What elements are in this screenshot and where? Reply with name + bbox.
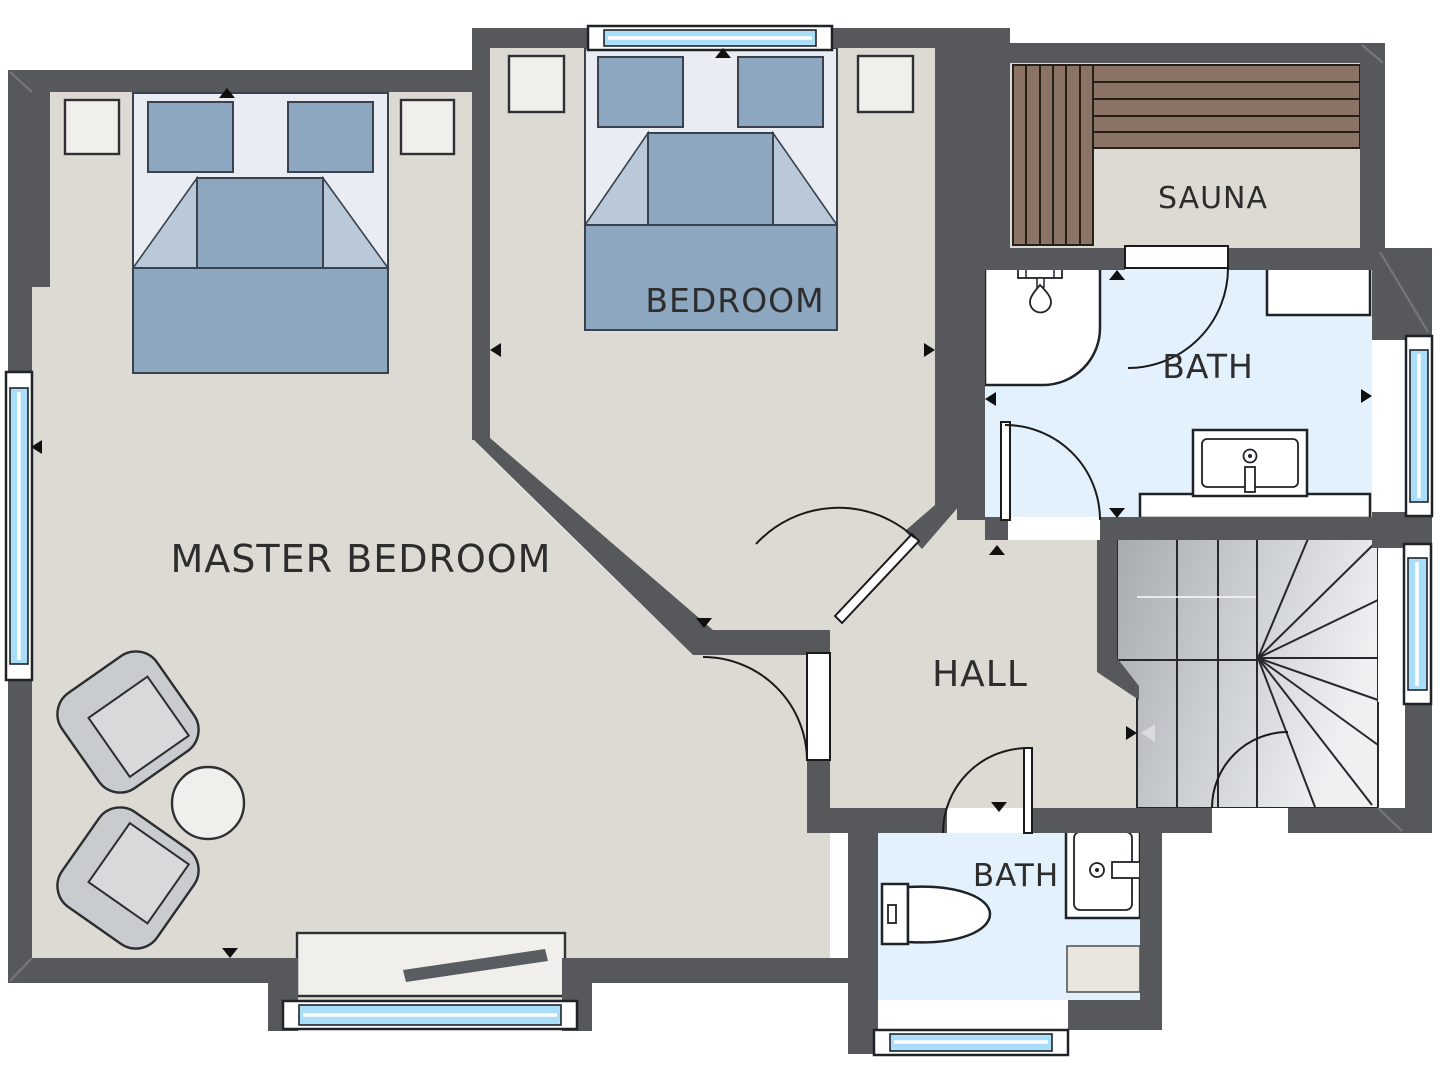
pillow-left — [148, 102, 233, 172]
window-right-stairs — [1378, 544, 1431, 704]
label-bedroom: BEDROOM — [645, 281, 824, 320]
wall-bottom-mid — [562, 958, 862, 983]
wall-bath-lower-left — [848, 833, 878, 1000]
bath-lower-step — [878, 1000, 1068, 1032]
label-hall: HALL — [932, 654, 1028, 695]
label-master-bedroom: MASTER BEDROOM — [171, 537, 552, 581]
washbasin-upper-bath — [1193, 430, 1307, 496]
winder-staircase — [1117, 534, 1378, 808]
wall-master-top — [8, 70, 472, 92]
window-sill — [1372, 340, 1408, 512]
sideboard — [297, 933, 565, 996]
wall-bottom-left — [8, 958, 298, 983]
wall-bath-upper-left — [957, 270, 985, 520]
wall-bath-upper-ne-block — [1372, 248, 1432, 340]
wall-bath-upper-bottom-b — [1100, 517, 1405, 540]
wall-left-lower — [8, 678, 32, 983]
label-sauna: SAUNA — [1158, 181, 1268, 216]
wall-stairs-bottom-right — [1288, 808, 1405, 833]
nightstand-right-master — [401, 100, 454, 154]
window-bay-master — [283, 1001, 577, 1029]
wall-stairwell-left — [1097, 534, 1117, 662]
sauna-bench-vertical — [1013, 65, 1093, 245]
wall-bedroom-sauna-block — [935, 28, 1010, 270]
wall-bedroom-right — [935, 270, 960, 505]
nightstand-left — [509, 56, 564, 112]
wall-master-door-jamb — [807, 760, 830, 812]
wall-left-mid — [8, 287, 32, 372]
wall-bath-lower-se — [1068, 1000, 1162, 1030]
stair-field — [1117, 534, 1378, 808]
floor-plan-canvas: MASTER BEDROOM BEDROOM SAUNA BATH HALL B… — [0, 0, 1440, 1080]
bath-mat — [1067, 946, 1140, 992]
shower-stall — [985, 266, 1100, 385]
window-bottom-bath-lower — [874, 1030, 1068, 1055]
door-threshold — [1008, 517, 1100, 540]
wall-sauna-top — [1010, 43, 1385, 63]
nightstand-right — [858, 56, 913, 112]
wall-divider-vertical — [472, 28, 490, 440]
wall-stairs-right — [1405, 694, 1432, 833]
sauna-bench-horizontal — [1093, 65, 1360, 148]
floor-plan-svg: MASTER BEDROOM BEDROOM SAUNA BATH HALL B… — [0, 0, 1440, 1080]
wall-left-step — [8, 275, 50, 287]
counter — [1140, 494, 1370, 518]
pillow-right — [288, 102, 373, 172]
wall-bath-lower-right — [1140, 833, 1162, 1000]
window-right-bath-upper — [1372, 336, 1432, 516]
wall-hall-bottom-right — [1028, 808, 1140, 833]
window-top-bedroom — [588, 26, 832, 50]
pillow-right — [738, 57, 823, 127]
washbasin-lower-bath — [1066, 824, 1140, 918]
window-left-wall — [6, 372, 32, 680]
round-side-table — [172, 767, 244, 839]
wall-bedroom-top-right — [830, 28, 935, 48]
wall-left-upper — [8, 70, 50, 287]
door-threshold — [947, 808, 1028, 833]
nightstand-left-master — [65, 100, 119, 154]
wall-bedroom-top-left — [490, 28, 590, 48]
door-threshold-stairs — [1212, 808, 1288, 833]
pillow-left — [598, 57, 683, 127]
wall-sauna-bottom-left — [1010, 248, 1125, 270]
wall-sauna-bottom-right — [1228, 248, 1378, 270]
master-double-bed — [133, 93, 388, 373]
label-bath-lower: BATH — [973, 858, 1059, 894]
wall-cabinet — [1267, 268, 1370, 315]
wall-sauna-right — [1360, 43, 1385, 248]
wall-hall-bottom-left — [807, 808, 947, 833]
label-bath-upper: BATH — [1162, 347, 1254, 386]
